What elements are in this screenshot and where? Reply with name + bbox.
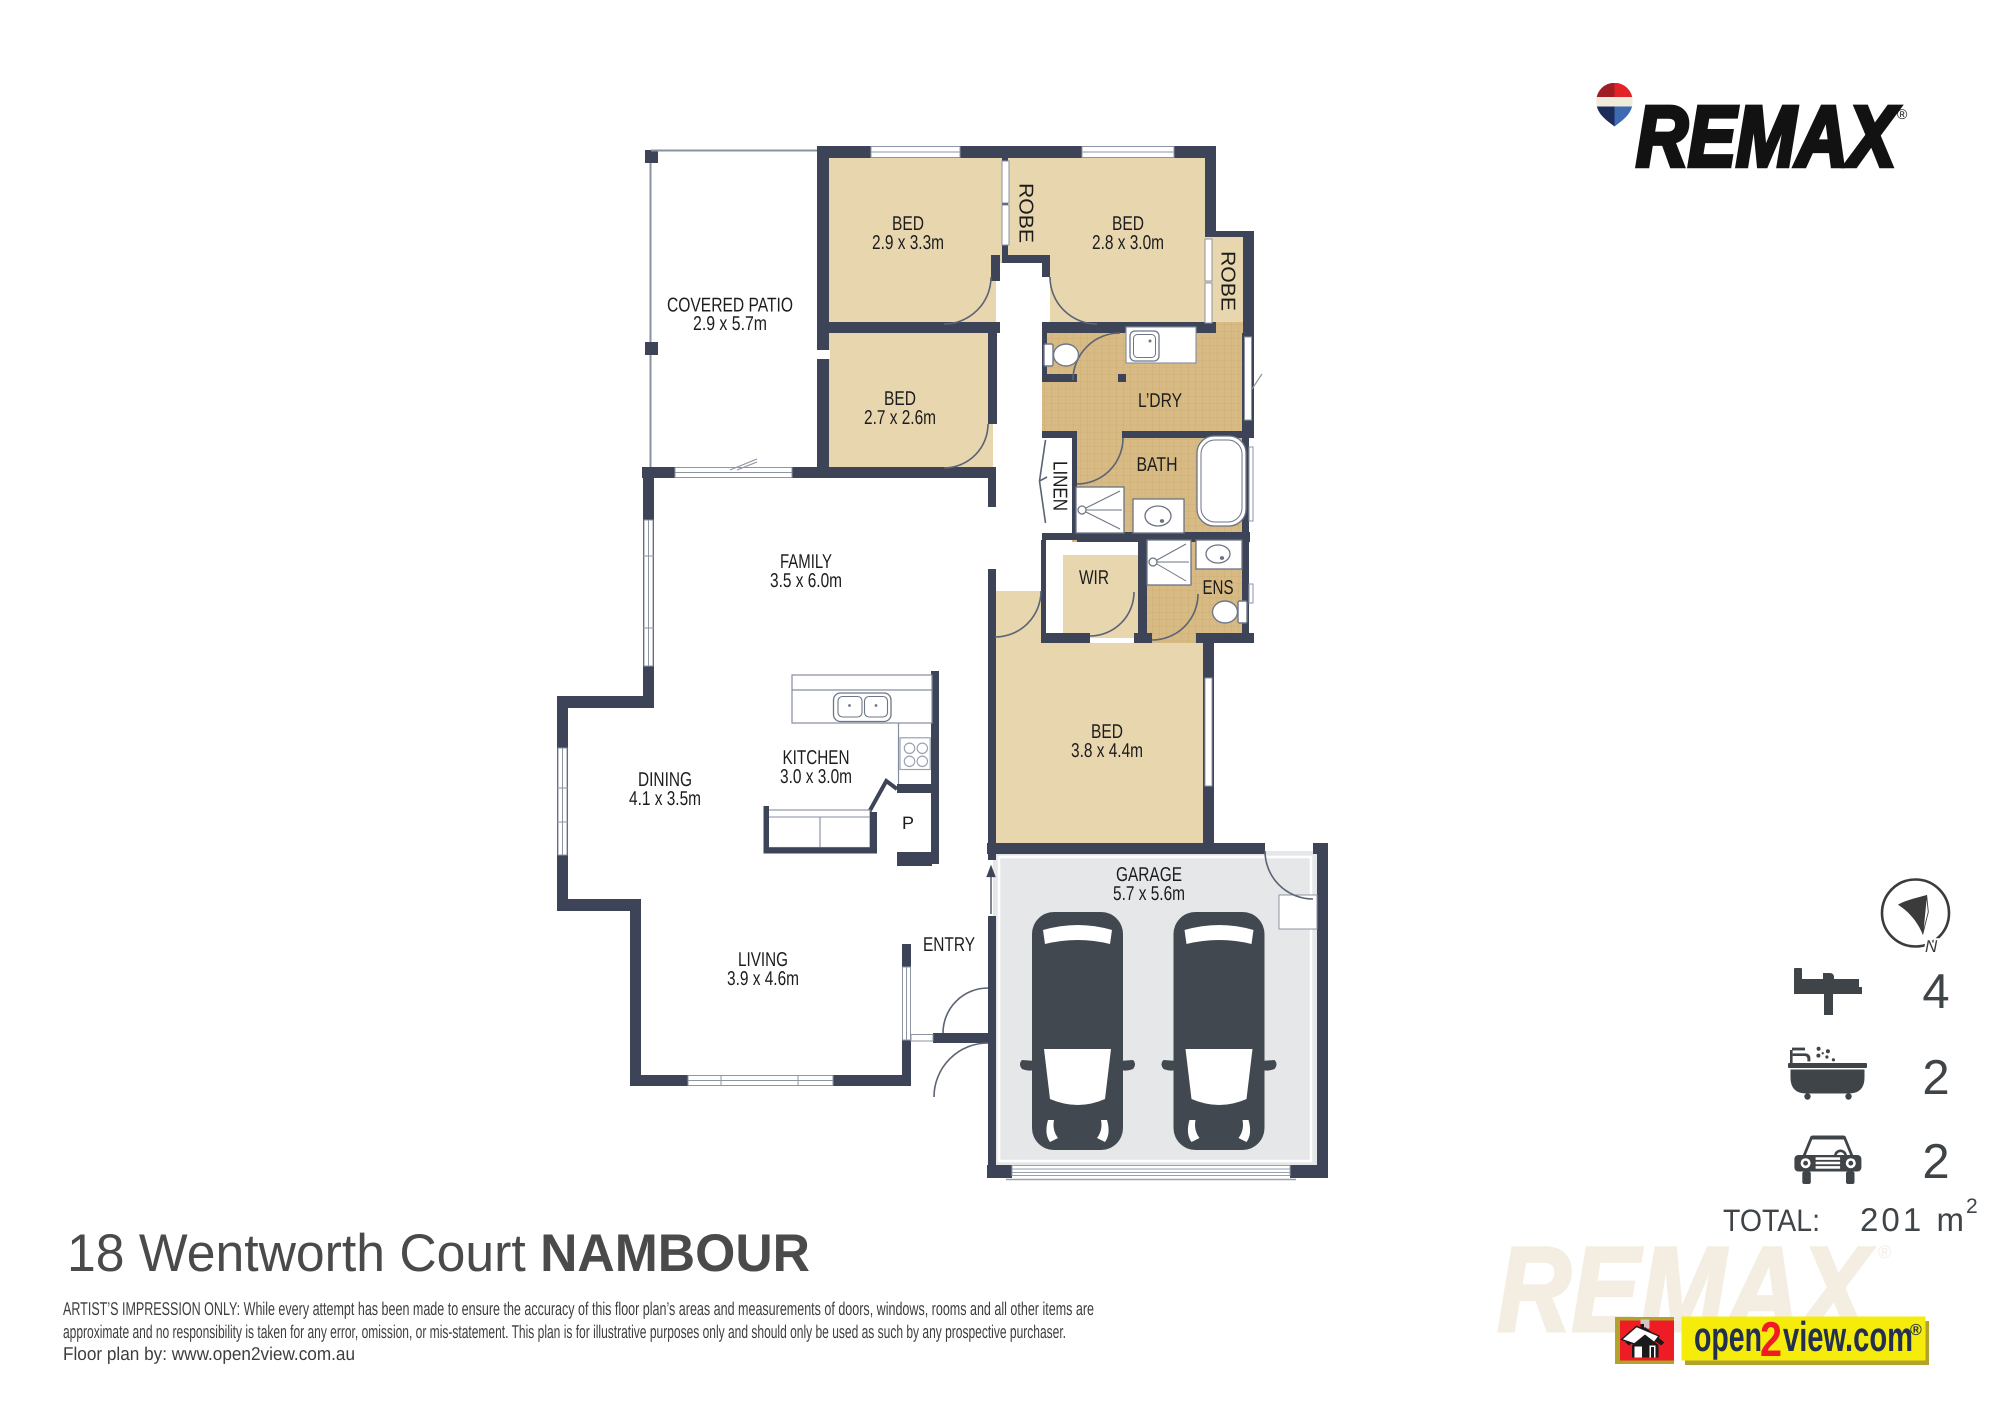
svg-text:N: N: [1925, 937, 1938, 956]
svg-text:3.0 x 3.0m: 3.0 x 3.0m: [780, 766, 852, 788]
svg-text:2.7 x 2.6m: 2.7 x 2.6m: [864, 407, 936, 429]
svg-text:open: open: [1694, 1313, 1762, 1360]
svg-text:ROBE: ROBE: [1015, 183, 1037, 243]
svg-text:3.5 x 6.0m: 3.5 x 6.0m: [770, 570, 842, 592]
svg-text:2: 2: [1922, 1135, 1949, 1189]
svg-text:REMAX: REMAX: [1636, 89, 1900, 185]
svg-text:2: 2: [1966, 1195, 1978, 1218]
svg-text:18 Wentworth Court NAMBOUR: 18 Wentworth Court NAMBOUR: [67, 1224, 810, 1283]
svg-text:view.com: view.com: [1783, 1313, 1913, 1360]
svg-text:ARTIST’S IMPRESSION ONLY: Whil: ARTIST’S IMPRESSION ONLY: While every at…: [63, 1298, 1094, 1319]
svg-text:2: 2: [1760, 1313, 1782, 1367]
svg-text:BATH: BATH: [1137, 454, 1178, 476]
svg-text:2.8 x 3.0m: 2.8 x 3.0m: [1092, 232, 1164, 254]
svg-text:approximate and no responsibil: approximate and no responsibility is tak…: [63, 1321, 1066, 1342]
svg-text:5.7 x 5.6m: 5.7 x 5.6m: [1113, 883, 1185, 905]
svg-text:TOTAL:: TOTAL:: [1723, 1203, 1820, 1238]
svg-text:Floor plan by: www.open2view.c: Floor plan by: www.open2view.com.au: [63, 1343, 355, 1364]
svg-text:ENTRY: ENTRY: [923, 934, 975, 956]
svg-text:®: ®: [1897, 106, 1908, 122]
svg-text:ROBE: ROBE: [1217, 251, 1239, 311]
svg-text:WIR: WIR: [1079, 567, 1109, 589]
svg-text:2: 2: [1922, 1051, 1949, 1105]
svg-text:4.1 x 3.5m: 4.1 x 3.5m: [629, 788, 701, 810]
svg-text:2.9 x 5.7m: 2.9 x 5.7m: [693, 313, 767, 335]
svg-text:4: 4: [1922, 965, 1949, 1019]
svg-text:3.8 x 4.4m: 3.8 x 4.4m: [1071, 740, 1143, 762]
svg-text:L’DRY: L’DRY: [1138, 390, 1182, 412]
svg-text:®: ®: [1878, 1242, 1891, 1262]
svg-text:2.9 x 3.3m: 2.9 x 3.3m: [872, 232, 944, 254]
svg-text:201 m: 201 m: [1860, 1201, 1964, 1238]
svg-text:LINEN: LINEN: [1049, 461, 1071, 511]
svg-text:ENS: ENS: [1203, 577, 1234, 599]
svg-text:3.9 x 4.6m: 3.9 x 4.6m: [727, 968, 799, 990]
svg-text:®: ®: [1910, 1322, 1922, 1339]
svg-text:P: P: [902, 813, 914, 833]
